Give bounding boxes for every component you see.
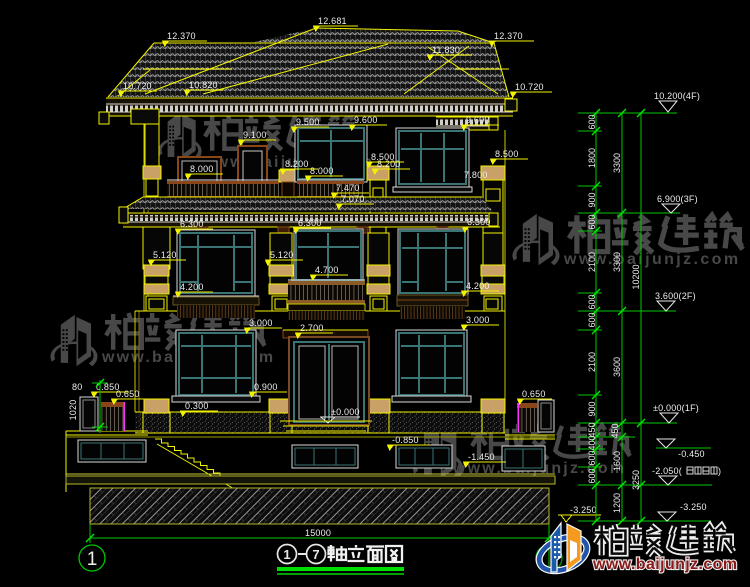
svg-text:6.300: 6.300 xyxy=(298,218,322,228)
svg-text:600: 600 xyxy=(587,468,597,483)
svg-text:8.000: 8.000 xyxy=(190,164,214,174)
svg-text:0.650: 0.650 xyxy=(116,389,140,399)
svg-text:2.700: 2.700 xyxy=(300,323,324,333)
svg-text:12.681: 12.681 xyxy=(318,16,347,26)
svg-text:0.300: 0.300 xyxy=(185,401,209,411)
svg-text:1200: 1200 xyxy=(612,493,622,513)
svg-text:2100: 2100 xyxy=(587,252,597,272)
svg-text:3.000: 3.000 xyxy=(249,318,273,328)
svg-text:450: 450 xyxy=(587,422,597,437)
svg-text:5.120: 5.120 xyxy=(270,250,294,260)
svg-text:9.600: 9.600 xyxy=(354,115,378,125)
svg-text:-1.450: -1.450 xyxy=(468,452,495,462)
svg-text:0.900: 0.900 xyxy=(254,382,278,392)
svg-text:8.000: 8.000 xyxy=(310,166,334,176)
svg-text:-2.050(: -2.050( xyxy=(652,466,682,476)
svg-text:9.100: 9.100 xyxy=(243,130,267,140)
svg-text:1800: 1800 xyxy=(587,148,597,168)
svg-text:5.120: 5.120 xyxy=(153,250,177,260)
svg-text:10.200(4F): 10.200(4F) xyxy=(654,91,700,101)
svg-text:3300: 3300 xyxy=(612,252,622,272)
svg-text:3.000: 3.000 xyxy=(466,315,490,325)
svg-text:400: 400 xyxy=(587,435,597,450)
svg-text:600: 600 xyxy=(587,312,597,327)
svg-text:12.370: 12.370 xyxy=(494,31,523,41)
svg-text:1: 1 xyxy=(87,549,98,570)
svg-text:6.300: 6.300 xyxy=(180,219,204,229)
svg-text:-3.250: -3.250 xyxy=(570,505,597,515)
svg-text:0.650: 0.650 xyxy=(522,389,546,399)
svg-text:9.600: 9.600 xyxy=(466,115,490,125)
svg-text:-0.450: -0.450 xyxy=(678,449,705,459)
svg-text:10200: 10200 xyxy=(631,264,641,289)
svg-text:7.800: 7.800 xyxy=(464,170,488,180)
svg-text:-3.250: -3.250 xyxy=(680,502,707,512)
svg-text:600: 600 xyxy=(587,214,597,229)
svg-text:600: 600 xyxy=(587,450,597,465)
svg-text:12.370: 12.370 xyxy=(167,31,196,41)
svg-text:11.830: 11.830 xyxy=(432,45,460,55)
svg-text:4.200: 4.200 xyxy=(180,282,204,292)
svg-text:3250: 3250 xyxy=(631,470,641,490)
svg-text:): ) xyxy=(718,466,721,476)
svg-text:www.baijunjz.com: www.baijunjz.com xyxy=(592,556,738,573)
svg-text:7.070: 7.070 xyxy=(341,194,365,204)
svg-text:8.500: 8.500 xyxy=(495,149,519,159)
svg-text:600: 600 xyxy=(587,114,597,129)
svg-text:1600: 1600 xyxy=(612,451,622,471)
svg-text:3.600(2F): 3.600(2F) xyxy=(655,291,696,301)
svg-text:8.500: 8.500 xyxy=(371,152,395,162)
svg-text:10.720: 10.720 xyxy=(123,81,152,91)
svg-text:9.500: 9.500 xyxy=(296,117,320,127)
svg-text:±0.000(1F): ±0.000(1F) xyxy=(653,403,699,413)
svg-text:1: 1 xyxy=(283,547,290,562)
svg-text:80: 80 xyxy=(72,382,82,392)
svg-text:-0.850: -0.850 xyxy=(392,435,419,445)
svg-text:3600: 3600 xyxy=(612,357,622,377)
svg-text:7.470: 7.470 xyxy=(336,183,360,193)
svg-text:3300: 3300 xyxy=(612,153,622,173)
svg-text:7: 7 xyxy=(312,547,319,562)
svg-text:6.300: 6.300 xyxy=(467,217,491,227)
svg-text:4.700: 4.700 xyxy=(315,265,339,275)
svg-text:2100: 2100 xyxy=(587,352,597,372)
svg-text:450: 450 xyxy=(610,423,620,438)
svg-text:6.900(3F): 6.900(3F) xyxy=(657,194,698,204)
svg-text:±0.000: ±0.000 xyxy=(331,407,360,417)
svg-text:8.200: 8.200 xyxy=(285,159,309,169)
svg-text:10.820: 10.820 xyxy=(189,80,218,90)
svg-text:1020: 1020 xyxy=(68,400,78,421)
svg-text:900: 900 xyxy=(587,401,597,416)
svg-text:10.720: 10.720 xyxy=(515,82,544,92)
svg-text:4.200: 4.200 xyxy=(466,281,490,291)
svg-text:600: 600 xyxy=(587,294,597,309)
svg-text:15000: 15000 xyxy=(305,528,331,538)
svg-text:900: 900 xyxy=(587,192,597,207)
